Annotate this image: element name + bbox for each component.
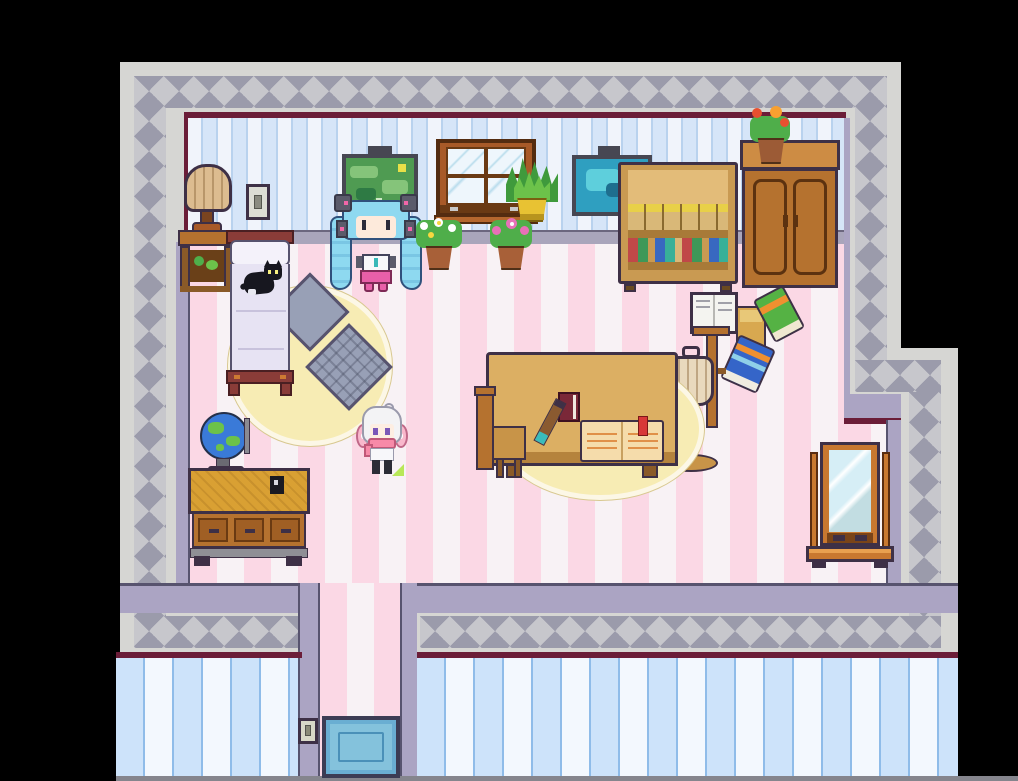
bottom-left-baseline (116, 652, 302, 658)
hallway-wall-right (400, 583, 417, 776)
notebook-line (718, 309, 732, 311)
bed-fold (236, 310, 286, 312)
flower-pot-body (496, 246, 526, 270)
bottom-right-baseline (417, 652, 958, 658)
flower-pink (520, 226, 529, 235)
mirror-glass (829, 450, 871, 532)
globe-axis (244, 418, 250, 454)
drawer-handle (281, 529, 291, 533)
bookmark (638, 416, 648, 436)
nightstand-shelf (190, 250, 224, 282)
globe-land (208, 422, 224, 434)
flower-center (510, 222, 514, 226)
cat-eye (275, 270, 278, 274)
desk-foot (286, 556, 302, 566)
miku-hairtie-left (334, 194, 352, 212)
roommate-character[interactable] (356, 406, 408, 480)
flower-red (780, 118, 789, 127)
mirror-crossbar (827, 533, 873, 543)
cabinet-door-left (753, 179, 787, 275)
flower-pot-body (756, 138, 786, 164)
bookshelf-back (628, 170, 728, 204)
game-viewport (0, 0, 1018, 781)
flower-center (437, 221, 441, 225)
open-book-spine (621, 422, 623, 460)
bed-post (228, 382, 240, 396)
roommate-leg (372, 460, 380, 474)
standing-mirror[interactable] (806, 440, 894, 570)
globe-land (226, 436, 240, 446)
cat-head (264, 264, 282, 280)
mirror-base (806, 546, 894, 562)
miku-leg (364, 282, 374, 292)
bookshelf-foot (624, 284, 636, 292)
mirror-foot (874, 562, 888, 568)
bed-accent (234, 375, 240, 379)
shelf-boxes-top (628, 204, 728, 212)
flower-white (448, 224, 456, 232)
desk-item (270, 476, 284, 494)
miku-headphone-left (336, 220, 348, 238)
exterior-wallpaper-right (417, 658, 958, 776)
wall-band-right-upper (855, 76, 887, 368)
flower-white (420, 222, 428, 230)
mirror-post (810, 452, 818, 550)
flower-yellow (428, 232, 434, 238)
art-blob (350, 166, 378, 178)
desk-top (188, 468, 310, 514)
hairtie-pink-dot (344, 201, 348, 205)
cabinet-handle (793, 215, 798, 227)
roommate-eye (373, 428, 378, 435)
miku-leg (378, 282, 388, 292)
desk-front (192, 512, 306, 548)
shelf-books (628, 238, 728, 262)
flower-orange (770, 106, 782, 118)
wall-band-left (134, 76, 166, 648)
notebook-line (696, 306, 710, 308)
chair-seat (492, 426, 526, 460)
open-book (580, 420, 664, 462)
flower-pot-body (424, 246, 454, 270)
chair[interactable] (474, 386, 526, 482)
chair-leg (514, 458, 522, 478)
headphone-pink-dot (340, 227, 344, 231)
wall-bottom-left-face (120, 583, 320, 613)
shelf-board (628, 262, 728, 270)
drawer-handle (245, 529, 255, 533)
bed-fold (238, 348, 284, 350)
mirror-frame (820, 442, 880, 546)
cat-eye (268, 270, 271, 274)
wall-band-bottom-right (420, 616, 941, 648)
mirror-foot (812, 562, 826, 568)
miku-eye (386, 220, 390, 230)
miku-character[interactable] (330, 194, 422, 292)
drawer-handle (209, 529, 219, 533)
lamp-shade (184, 164, 232, 212)
hallway-wall-left (298, 583, 320, 776)
hallway-switch-toggle (305, 725, 311, 736)
desk-item-dot (274, 480, 278, 485)
cabinet-door-right (793, 179, 827, 275)
flower-red (752, 108, 762, 118)
switch-toggle (254, 195, 262, 209)
mirror-pad (855, 535, 867, 541)
chair-leg (496, 458, 504, 478)
mirror-post (882, 452, 890, 550)
shelf-board (628, 230, 728, 238)
miku-tie (374, 258, 378, 267)
miku-face (356, 216, 396, 238)
globe (200, 412, 248, 460)
doormat-pattern (338, 732, 384, 762)
wall-band-step (855, 360, 941, 392)
shelf-plant (206, 260, 218, 270)
white-flower-pot[interactable] (414, 218, 464, 270)
cat-paw (248, 289, 256, 295)
mirror-pad (833, 535, 845, 541)
globe-land (216, 444, 224, 451)
spiky-plant[interactable] (506, 158, 558, 222)
miku-eye (362, 220, 366, 230)
light-switch[interactable] (246, 184, 270, 220)
notebook-line (696, 300, 710, 302)
black-cat[interactable] (240, 262, 284, 300)
mirror-base-highlight (809, 549, 891, 553)
roommate-leg (384, 460, 392, 474)
screen-bottom-bar (116, 776, 1018, 781)
open-book-text (587, 428, 617, 454)
desk-drawer (234, 518, 264, 542)
doormat[interactable] (322, 716, 400, 778)
shelf-boxes (628, 212, 728, 230)
shelf-plant (194, 256, 204, 266)
cabinet-flower-pot[interactable] (746, 106, 796, 168)
desk-foot (194, 556, 210, 566)
bed-post (280, 382, 292, 396)
roommate-green-item (392, 464, 404, 476)
window-pane (448, 178, 484, 203)
art-blob (382, 180, 408, 194)
wall-bottom-right-face (417, 583, 958, 613)
cabinet-body (742, 168, 838, 288)
miku-hairtie-right (400, 194, 418, 212)
hairtie-pink-dot (404, 201, 408, 205)
pink-flower-pot[interactable] (488, 218, 534, 270)
red-book-pages (573, 395, 576, 419)
cabinet-handle (783, 215, 788, 227)
window-pane (448, 149, 484, 174)
hallway-switch[interactable] (298, 718, 318, 744)
window-hinge (450, 207, 458, 211)
bed-accent (280, 375, 286, 379)
headphone-pink-dot (408, 227, 412, 231)
bookshelf[interactable] (618, 162, 738, 292)
green-book-stripe (759, 295, 789, 315)
bed[interactable] (226, 230, 294, 398)
flower-pink (492, 226, 501, 235)
wall-band-top (134, 76, 887, 108)
desk-drawer (198, 518, 228, 542)
drawer-desk[interactable] (186, 410, 312, 568)
roommate-eye (385, 428, 390, 435)
wall-band-bottom-left (134, 616, 306, 648)
bookshelf-foot (720, 284, 732, 292)
bookshelf-body (618, 162, 738, 284)
exterior-wallpaper-left (116, 658, 302, 776)
desk-drawer (270, 518, 300, 542)
painting-mount (598, 146, 620, 155)
table-foot (642, 464, 658, 478)
notebook-line (718, 302, 732, 304)
art-dot (398, 164, 406, 172)
